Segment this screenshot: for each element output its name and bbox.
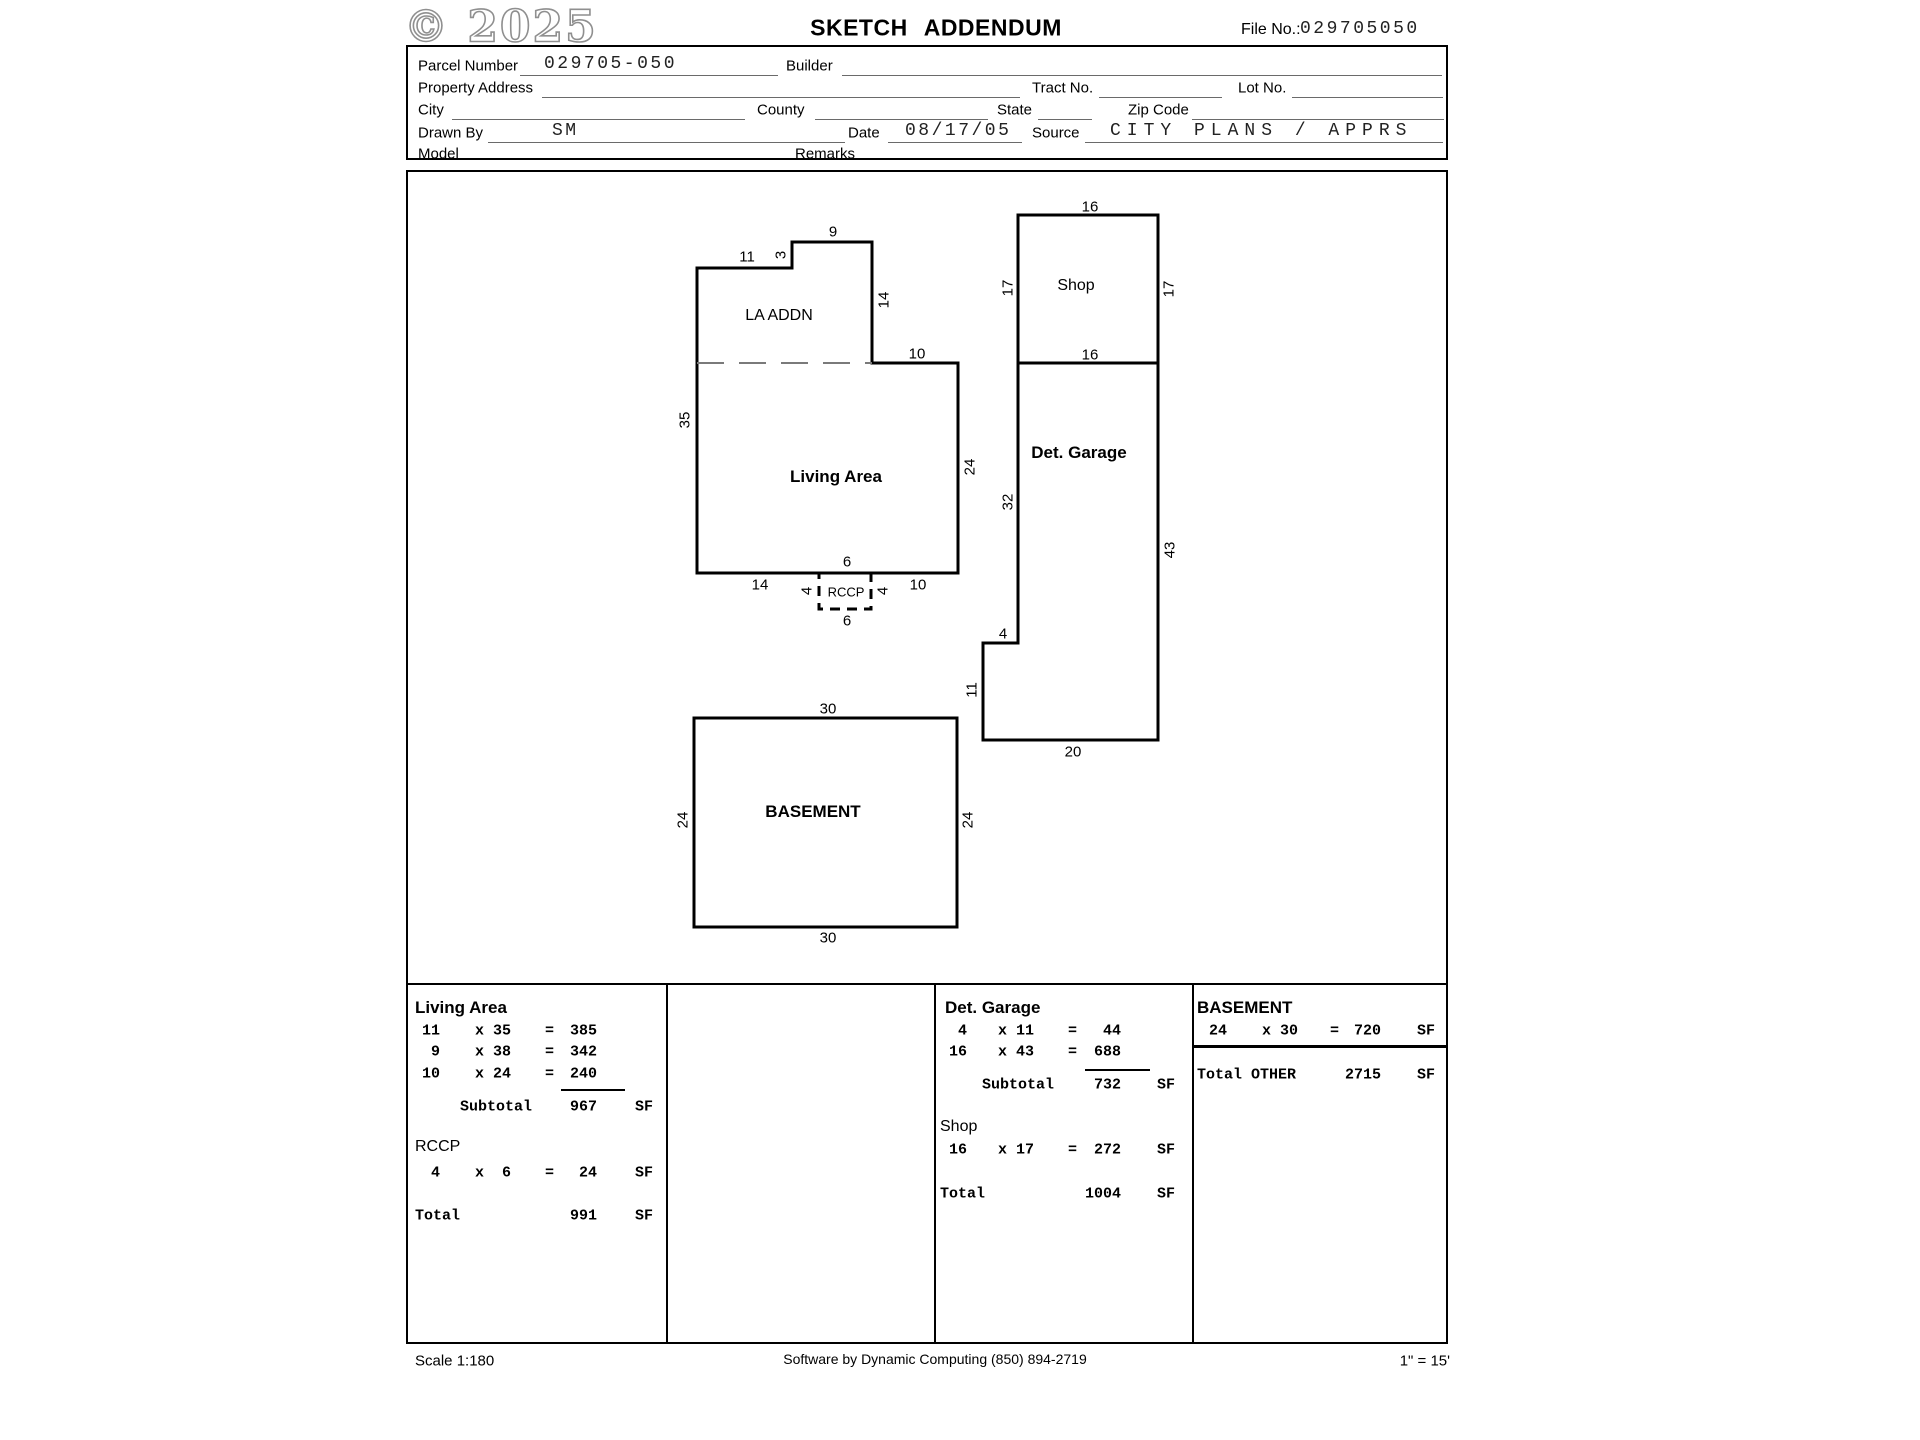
state-underline: [1038, 119, 1092, 120]
calc-unit: SF: [1157, 1142, 1175, 1159]
calc-operand-2: x 24: [475, 1066, 511, 1083]
city-label: City: [418, 102, 444, 119]
sketch-table-divider: [406, 983, 1448, 985]
builder-label: Builder: [786, 58, 833, 75]
remarks-label: Remarks: [795, 146, 855, 163]
calc-operand-1: 4: [897, 1023, 967, 1040]
tract-no-underline: [1099, 97, 1222, 98]
calc-unit: SF: [1417, 1023, 1435, 1040]
basement-total-divider: [1193, 1045, 1448, 1048]
source-underline: [1085, 142, 1443, 143]
dimension-label: 24: [962, 459, 979, 476]
total-unit: SF: [1157, 1186, 1175, 1203]
calc-operand-2: x 35: [475, 1023, 511, 1040]
zip-code-underline: [1192, 119, 1444, 120]
dimension-label: 43: [1162, 542, 1179, 559]
calc-result: 342: [517, 1044, 597, 1061]
calc-operand-1: 9: [370, 1044, 440, 1061]
calc-unit: SF: [635, 1165, 653, 1182]
subtotal-unit: SF: [1157, 1077, 1175, 1094]
dimension-label: 11: [964, 682, 981, 698]
table-subsection-title: RCCP: [415, 1138, 460, 1156]
calc-operand-2: x 43: [998, 1044, 1034, 1061]
calc-result: 272: [1041, 1142, 1121, 1159]
zip-code-label: Zip Code: [1128, 102, 1189, 119]
total-value: 991: [517, 1208, 597, 1225]
city-underline: [452, 119, 745, 120]
drawn-by-value: SM: [552, 121, 579, 141]
calc-operand-1: 16: [897, 1142, 967, 1159]
parcel-number-value: 029705-050: [544, 54, 677, 74]
scale-note-left: Scale 1:180: [415, 1353, 494, 1370]
calc-operand-2: x 11: [998, 1023, 1034, 1040]
calc-operand-2: x 17: [998, 1142, 1034, 1159]
property-address-label: Property Address: [418, 80, 533, 97]
room-label: RCCP: [828, 585, 865, 600]
builder-underline: [842, 75, 1442, 76]
model-label: Model: [418, 146, 459, 163]
tract-no-label: Tract No.: [1032, 80, 1093, 97]
total-label: Total: [940, 1186, 985, 1203]
calc-result: 240: [517, 1066, 597, 1083]
source-value: CITY PLANS / APPRS: [1110, 121, 1412, 141]
table-title: Living Area: [415, 998, 507, 1018]
room-label: Living Area: [790, 467, 882, 487]
dimension-label: 9: [829, 224, 837, 241]
dimension-label: 30: [820, 701, 837, 718]
dimension-label: 4: [875, 587, 892, 595]
calc-operand-1: 10: [370, 1066, 440, 1083]
state-label: State: [997, 102, 1032, 119]
dimension-label: 10: [910, 577, 927, 594]
table-subsection-title: Shop: [940, 1118, 977, 1136]
det-garage-subtotal-line: [1085, 1069, 1150, 1071]
calc-operand-2: x 6: [475, 1165, 511, 1182]
total-value: 1004: [1041, 1186, 1121, 1203]
table-column-divider-1: [666, 985, 668, 1342]
dimension-label: 17: [1000, 280, 1017, 297]
dimension-label: 24: [675, 812, 692, 829]
table-title: Det. Garage: [945, 998, 1040, 1018]
table-title: BASEMENT: [1197, 998, 1292, 1018]
drawn-by-label: Drawn By: [418, 125, 483, 142]
calc-operand-1: 24: [1157, 1023, 1227, 1040]
source-label: Source: [1032, 125, 1080, 142]
dimension-label: 16: [1082, 347, 1099, 364]
date-value: 08/17/05: [905, 121, 1011, 141]
dimension-label: 14: [752, 577, 769, 594]
total-unit: SF: [1417, 1067, 1435, 1084]
calc-operand-2: x 30: [1262, 1023, 1298, 1040]
dimension-label: 35: [677, 412, 694, 429]
calc-operand-2: x 38: [475, 1044, 511, 1061]
calc-operand-1: 11: [370, 1023, 440, 1040]
total-unit: SF: [635, 1208, 653, 1225]
dimension-label: 4: [799, 587, 816, 595]
dimension-label: 14: [876, 292, 893, 309]
room-label: Shop: [1057, 277, 1094, 295]
drawn-by-underline: [488, 142, 845, 143]
county-underline: [815, 119, 988, 120]
dimension-label: 30: [820, 930, 837, 947]
room-label: LA ADDN: [745, 307, 813, 325]
dimension-label: 24: [960, 812, 977, 829]
calc-result: 385: [517, 1023, 597, 1040]
parcel-number-label: Parcel Number: [418, 58, 518, 75]
dimension-label: 17: [1161, 281, 1178, 298]
lot-no-underline: [1292, 97, 1443, 98]
dimension-label: 6: [843, 554, 851, 571]
page-title: SKETCH ADDENDUM: [810, 15, 1062, 42]
total-label: Total: [415, 1208, 460, 1225]
sketch-addendum-page: { "header": { "watermark": "© 2025", "ti…: [0, 0, 1920, 1440]
living-area-subtotal-line: [561, 1089, 625, 1091]
calc-operand-1: 16: [897, 1044, 967, 1061]
subtotal-value: 732: [1041, 1077, 1121, 1094]
calc-result: 688: [1041, 1044, 1121, 1061]
software-credit: Software by Dynamic Computing (850) 894-…: [783, 1351, 1087, 1367]
dimension-label: 3: [773, 251, 790, 259]
subtotal-value: 967: [517, 1099, 597, 1116]
dimension-label: 10: [909, 346, 926, 363]
file-no-value: 029705050: [1300, 19, 1420, 39]
dimension-label: 6: [843, 613, 851, 630]
lot-no-label: Lot No.: [1238, 80, 1286, 97]
room-label: BASEMENT: [765, 802, 860, 822]
calc-result: 720: [1301, 1023, 1381, 1040]
calc-result: 24: [517, 1165, 597, 1182]
dimension-label: 16: [1082, 199, 1099, 216]
property-address-underline: [542, 97, 1020, 98]
calc-operand-1: 4: [370, 1165, 440, 1182]
calc-result: 44: [1041, 1023, 1121, 1040]
scale-note-right: 1" = 15': [1400, 1353, 1450, 1370]
room-label: Det. Garage: [1031, 443, 1126, 463]
dimension-label: 32: [1000, 494, 1017, 511]
county-label: County: [757, 102, 805, 119]
dimension-label: 20: [1065, 744, 1082, 761]
date-label: Date: [848, 125, 880, 142]
parcel-number-underline: [520, 75, 778, 76]
subtotal-unit: SF: [635, 1099, 653, 1116]
dimension-label: 11: [739, 249, 755, 266]
total-label: Total OTHER: [1197, 1067, 1296, 1084]
date-underline: [888, 142, 1022, 143]
dimension-label: 4: [999, 626, 1007, 643]
total-value: 2715: [1301, 1067, 1381, 1084]
file-no-label: File No.:: [1241, 21, 1301, 39]
